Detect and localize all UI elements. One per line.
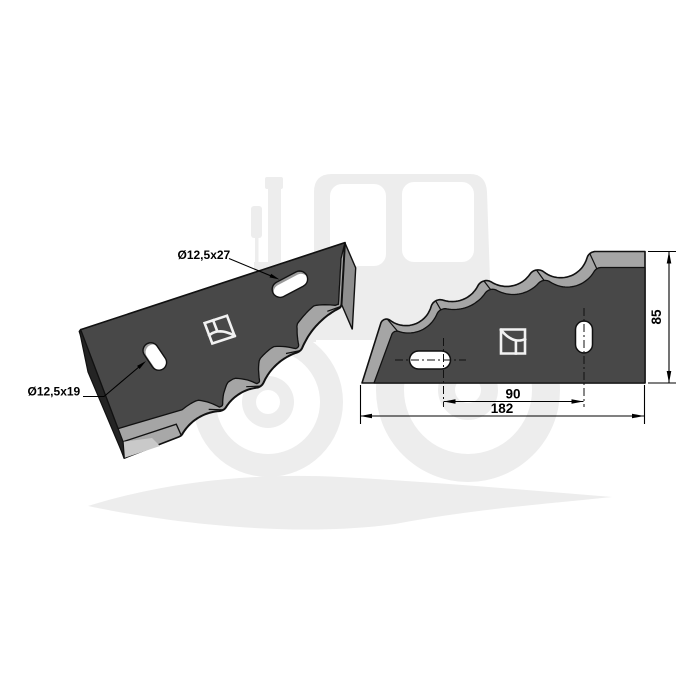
svg-text:85: 85 xyxy=(649,309,664,325)
svg-text:Ø12,5x19: Ø12,5x19 xyxy=(28,385,81,399)
svg-text:90: 90 xyxy=(505,387,520,402)
svg-text:Ø12,5x27: Ø12,5x27 xyxy=(178,248,231,262)
svg-text:182: 182 xyxy=(491,401,514,416)
